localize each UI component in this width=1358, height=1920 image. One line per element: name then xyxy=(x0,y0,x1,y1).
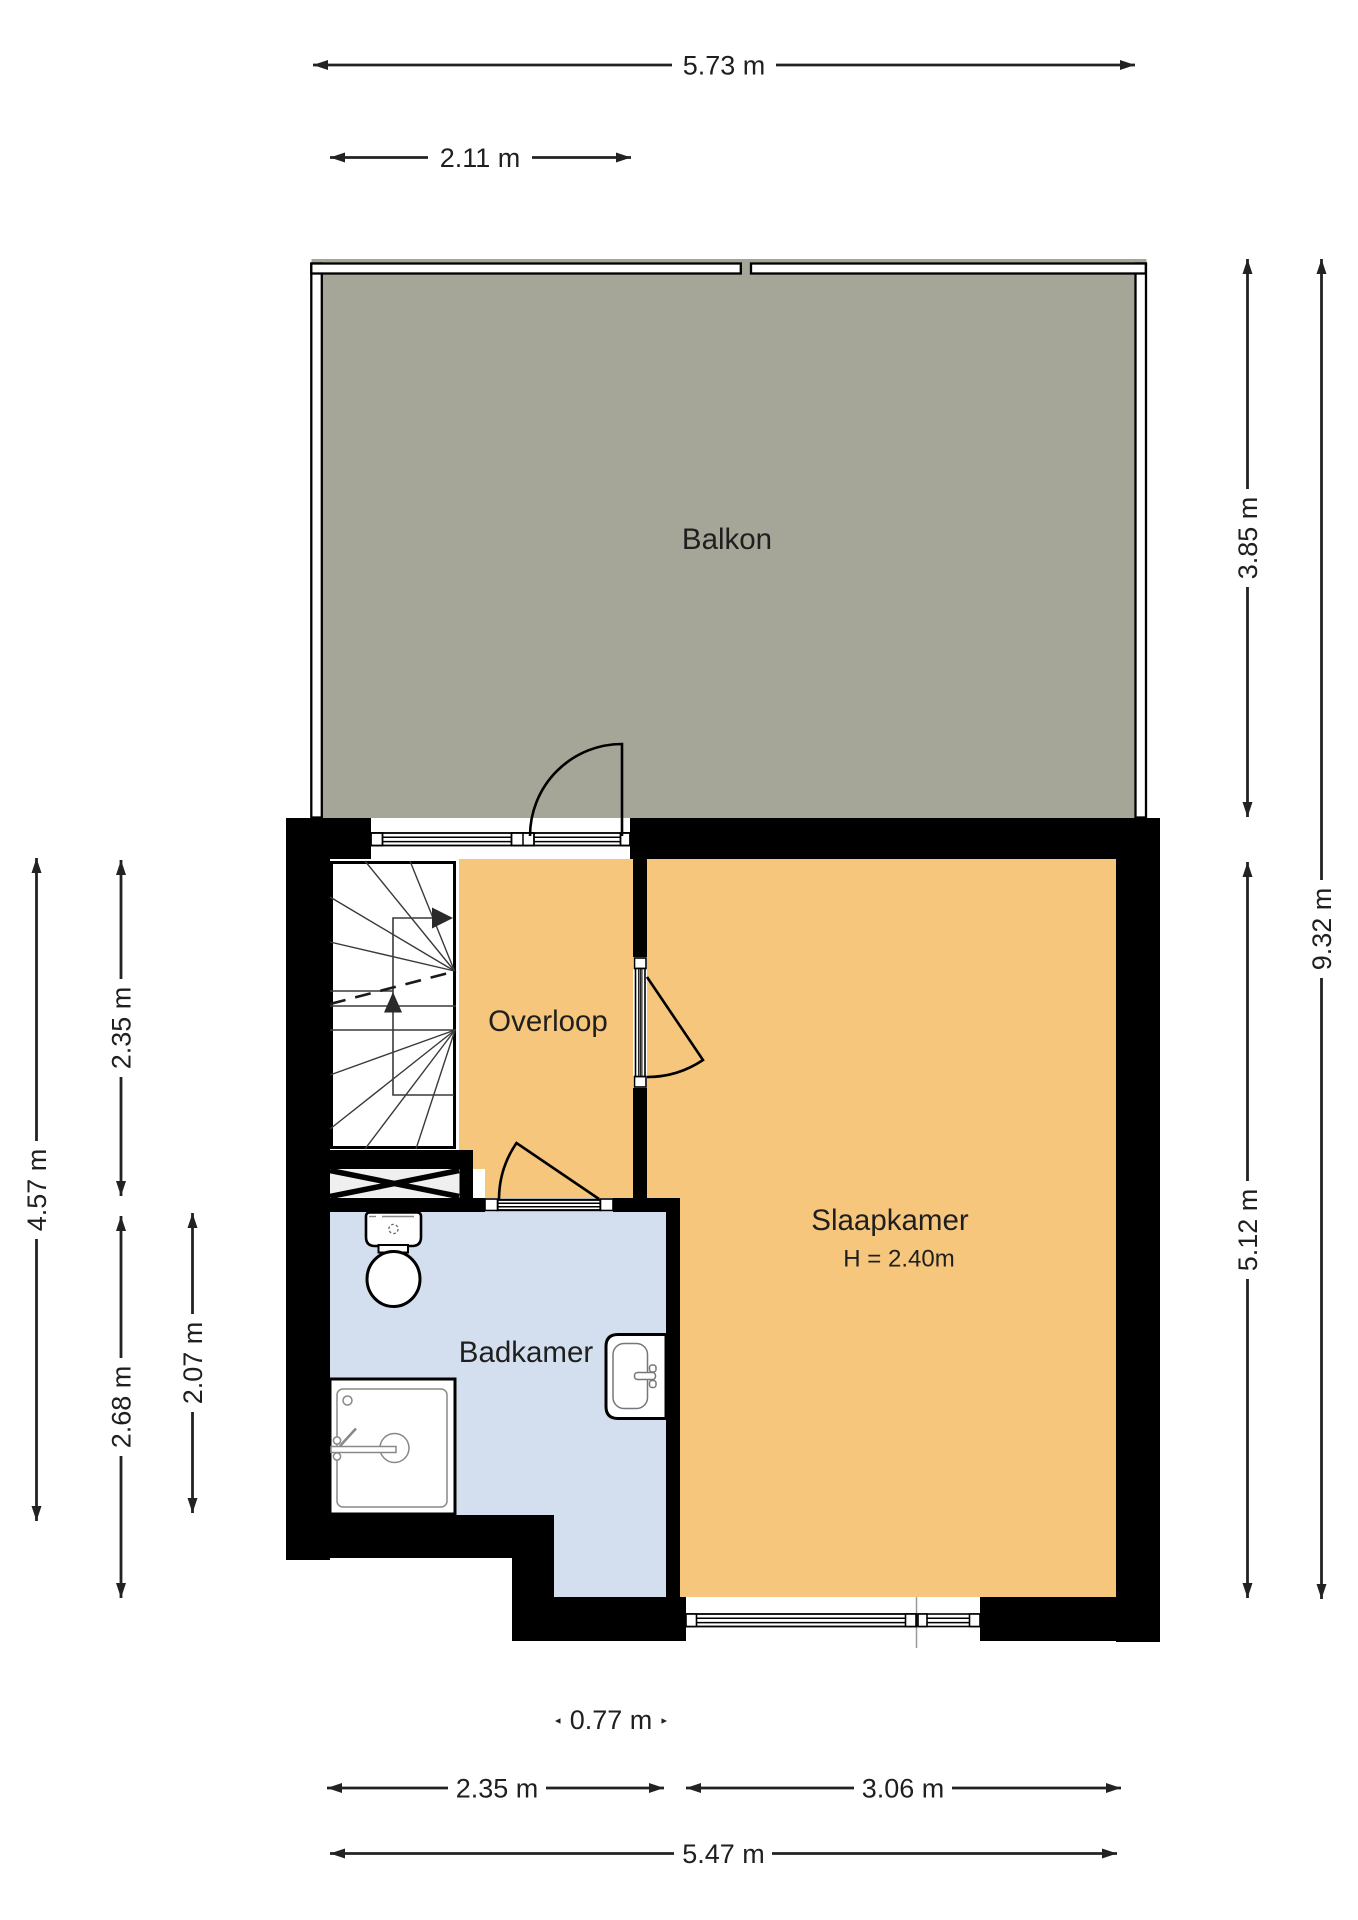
svg-text:5.12 m: 5.12 m xyxy=(1233,1189,1263,1272)
svg-text:3.06 m: 3.06 m xyxy=(862,1774,945,1804)
svg-text:2.11 m: 2.11 m xyxy=(440,143,521,173)
svg-text:Overloop: Overloop xyxy=(488,1005,608,1038)
svg-text:2.35 m: 2.35 m xyxy=(456,1774,539,1804)
svg-text:0.77 m: 0.77 m xyxy=(570,1705,653,1735)
svg-text:5.73 m: 5.73 m xyxy=(683,51,766,81)
svg-text:5.47 m: 5.47 m xyxy=(682,1839,765,1869)
svg-text:3.85 m: 3.85 m xyxy=(1233,497,1263,580)
svg-text:2.35 m: 2.35 m xyxy=(107,987,137,1070)
svg-text:Slaapkamer: Slaapkamer xyxy=(811,1204,969,1237)
svg-text:Balkon: Balkon xyxy=(682,523,772,556)
svg-text:4.57 m: 4.57 m xyxy=(22,1149,52,1232)
svg-text:2.68 m: 2.68 m xyxy=(107,1366,137,1449)
svg-text:9.32 m: 9.32 m xyxy=(1307,888,1337,971)
svg-text:2.07 m: 2.07 m xyxy=(178,1322,208,1405)
svg-text:H = 2.40m: H = 2.40m xyxy=(843,1246,954,1273)
svg-text:Badkamer: Badkamer xyxy=(459,1336,594,1369)
